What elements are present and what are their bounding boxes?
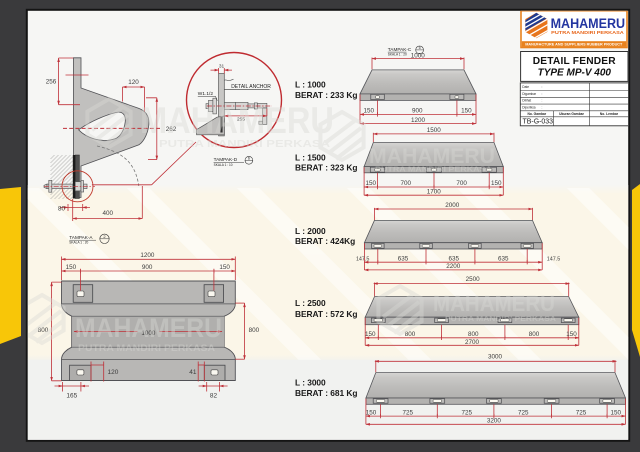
svg-text:Dilihat: Dilihat (522, 99, 531, 103)
svg-text:No. Gambar: No. Gambar (527, 112, 546, 116)
svg-text:700: 700 (456, 180, 467, 187)
svg-text:TAMPAK-D: TAMPAK-D (214, 157, 238, 162)
svg-text::: : (542, 105, 543, 109)
svg-text:400: 400 (103, 210, 114, 217)
svg-text:2500: 2500 (466, 276, 481, 283)
svg-text:150: 150 (366, 410, 377, 417)
svg-text:1200: 1200 (140, 252, 155, 259)
svg-text:1200: 1200 (411, 117, 426, 124)
svg-text:900: 900 (142, 264, 153, 271)
svg-text:2700: 2700 (465, 339, 480, 346)
svg-text:BERAT : 323 Kg: BERAT : 323 Kg (295, 163, 357, 173)
svg-text:TAMPAK-A: TAMPAK-A (69, 235, 93, 240)
svg-text:147.5: 147.5 (547, 256, 561, 262)
svg-text:725: 725 (461, 410, 472, 417)
svg-text:Diperiksa: Diperiksa (522, 105, 536, 109)
svg-text:2000: 2000 (445, 202, 460, 209)
svg-text:147.5: 147.5 (356, 256, 370, 262)
svg-text:150: 150 (366, 180, 377, 187)
svg-text:1500: 1500 (427, 127, 442, 134)
svg-text:DETAIL ANCHOR: DETAIL ANCHOR (231, 84, 271, 90)
svg-text:2200: 2200 (446, 263, 461, 270)
svg-text:TAMPAK-C: TAMPAK-C (388, 47, 412, 52)
svg-text:1000: 1000 (411, 52, 426, 59)
svg-text:PUTRA MANDIRI PERKASA: PUTRA MANDIRI PERKASA (78, 343, 215, 353)
svg-text:150: 150 (491, 180, 502, 187)
svg-text:MAHAMERU: MAHAMERU (75, 313, 222, 343)
svg-text:SKALA 1 : 10: SKALA 1 : 10 (214, 163, 233, 167)
svg-text:800: 800 (249, 327, 260, 334)
svg-text:L : 1000: L : 1000 (295, 79, 326, 89)
svg-text:900: 900 (412, 108, 423, 115)
svg-text:MAHAMERU: MAHAMERU (433, 291, 555, 316)
svg-text:BERAT : 424Kg: BERAT : 424Kg (295, 236, 355, 246)
svg-text:L : 2500: L : 2500 (295, 298, 326, 308)
svg-text:150: 150 (66, 264, 77, 271)
svg-text:5: 5 (419, 46, 421, 50)
svg-text:3000: 3000 (488, 354, 503, 361)
svg-text:Ukuran Gambar: Ukuran Gambar (559, 112, 584, 116)
svg-text:725: 725 (518, 410, 529, 417)
svg-text:800: 800 (529, 331, 540, 338)
svg-text:150: 150 (365, 331, 376, 338)
svg-text:3200: 3200 (487, 417, 502, 424)
svg-text:No. Lembar: No. Lembar (600, 112, 619, 116)
svg-text::: : (542, 92, 543, 96)
svg-text:SKALA 1 : 20: SKALA 1 : 20 (69, 241, 88, 245)
svg-text:120: 120 (108, 369, 119, 376)
svg-text:256: 256 (46, 78, 57, 85)
svg-text:PUTRA MANDIRI PERKASA: PUTRA MANDIRI PERKASA (375, 165, 492, 174)
svg-text:SKALA 1 : 20: SKALA 1 : 20 (388, 52, 407, 56)
svg-text:725: 725 (403, 410, 414, 417)
svg-text:6: 6 (248, 156, 250, 160)
svg-text:120: 120 (128, 79, 139, 86)
svg-text:BERAT : 572 Kg: BERAT : 572 Kg (295, 309, 357, 319)
svg-text:PUTRA MANDIRI PERKASA: PUTRA MANDIRI PERKASA (159, 138, 331, 150)
svg-text:150: 150 (461, 108, 472, 115)
svg-text:150: 150 (611, 410, 622, 417)
svg-text:MAHAMERU: MAHAMERU (140, 100, 334, 141)
svg-text:TB-G-033: TB-G-033 (523, 117, 554, 126)
svg-text:635: 635 (498, 255, 509, 262)
svg-text:635: 635 (449, 255, 460, 262)
svg-text:150: 150 (566, 331, 577, 338)
svg-text:800: 800 (468, 331, 479, 338)
svg-text:Date: Date (522, 85, 529, 89)
svg-text::: : (542, 99, 543, 103)
svg-text:725: 725 (576, 410, 587, 417)
svg-text::: : (542, 85, 543, 89)
svg-text:80: 80 (58, 206, 66, 213)
svg-text:700: 700 (401, 180, 412, 187)
svg-text:165: 165 (66, 392, 77, 399)
svg-text:150: 150 (363, 108, 374, 115)
svg-text:635: 635 (398, 255, 409, 262)
svg-text:PUTRA MANDIRI PERKASA: PUTRA MANDIRI PERKASA (445, 316, 556, 323)
svg-text:DETAIL FENDER: DETAIL FENDER (533, 56, 617, 67)
svg-text:L : 1500: L : 1500 (295, 153, 326, 163)
svg-text:L : 2000: L : 2000 (295, 226, 326, 236)
svg-text:82: 82 (210, 392, 218, 399)
svg-text:PUTRA MANDIRI PERKASA: PUTRA MANDIRI PERKASA (551, 30, 624, 35)
svg-text:BERAT : 681 Kg: BERAT : 681 Kg (295, 388, 357, 398)
svg-text:Digambar: Digambar (522, 92, 537, 96)
svg-text:BERAT : 233 Kg: BERAT : 233 Kg (295, 90, 357, 100)
svg-text:L : 3000: L : 3000 (295, 377, 326, 387)
svg-text:150: 150 (219, 264, 230, 271)
svg-text:31: 31 (219, 63, 225, 69)
svg-text:TYPE MP-V 400: TYPE MP-V 400 (538, 68, 612, 79)
svg-text:1700: 1700 (427, 189, 442, 196)
svg-text:MANUFACTURE AND SUPPLIERS RUBB: MANUFACTURE AND SUPPLIERS RUBBER PRODUCT (525, 42, 623, 47)
svg-text:41: 41 (189, 369, 197, 376)
